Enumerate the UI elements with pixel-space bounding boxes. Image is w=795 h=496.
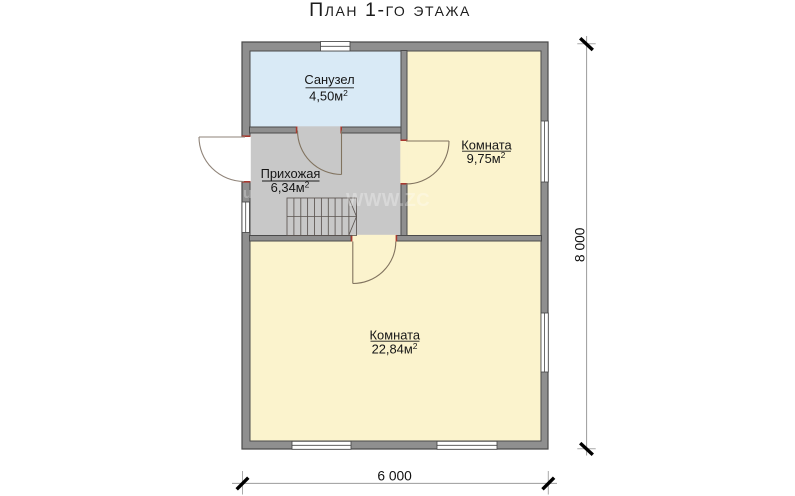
svg-text:4,50м2: 4,50м2 [309,88,348,104]
svg-text:WWW.ZC: WWW.ZC [346,189,430,210]
svg-text:Прихожая: Прихожая [261,166,321,181]
svg-text:План 1-го этажа: План 1-го этажа [309,0,471,21]
svg-text:8 000: 8 000 [573,227,588,262]
svg-text:22,84м2: 22,84м2 [372,341,418,357]
svg-text:6,34м2: 6,34м2 [271,179,310,195]
svg-text:9,75м2: 9,75м2 [467,150,506,166]
svg-text:Санузел: Санузел [304,72,354,87]
svg-text:6 000: 6 000 [377,468,412,483]
svg-text:u: u [243,185,252,202]
